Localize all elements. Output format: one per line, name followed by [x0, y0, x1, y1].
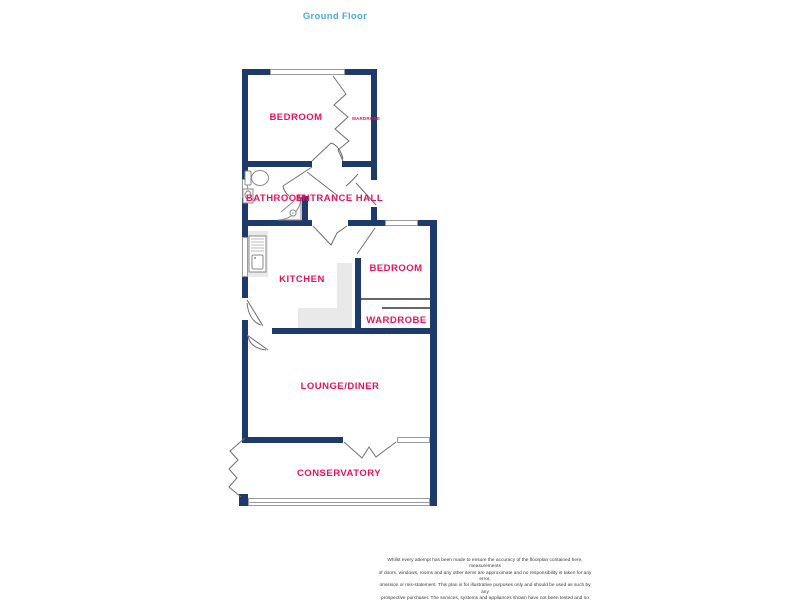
wardrobe2-divider-line [361, 298, 430, 300]
lounge-window [397, 437, 430, 443]
wall-bedroom1-bottom-left [242, 161, 312, 167]
disclaimer: Whilst every attempt has been made to en… [377, 558, 593, 600]
floor-title: Ground Floor [255, 11, 415, 22]
conservatory-window [248, 498, 430, 506]
disclaimer-line: omission or mis-statement. This plan is … [377, 583, 593, 596]
kitchen-side-door [247, 300, 263, 326]
kitchen-label: KITCHEN [262, 274, 342, 285]
conservatory-label: CONSERVATORY [279, 468, 399, 479]
plan-linework [0, 0, 800, 600]
kitchen-window [242, 237, 248, 277]
wardrobe2-label: WARDROBE [346, 315, 447, 326]
toilet-icon [245, 171, 269, 186]
kitchen-counter-horizontal [298, 308, 352, 328]
bedroom2-window [385, 220, 418, 226]
kitchen-counter-left [248, 231, 268, 277]
hall-kitchen-opening-mark [313, 226, 347, 245]
bedroom1-window [270, 69, 345, 75]
wardrobe2-door-line [382, 307, 430, 309]
conservatory-left-opening-mark [229, 438, 245, 497]
entrance-hall-label: ENTRANCE HALL [288, 193, 391, 204]
lounge-diner-label: LOUNGE/DINER [280, 381, 400, 392]
disclaimer-line: prospective purchaser. The services, sys… [377, 596, 593, 600]
floorplan-canvas: Ground Floor [0, 0, 800, 600]
bedroom2-label: BEDROOM [346, 263, 446, 274]
bedroom1-label: BEDROOM [246, 112, 346, 123]
bedroom1-door [312, 143, 343, 161]
wall-conservatory-stub [239, 494, 248, 506]
kitchen-side-door-opening [242, 298, 248, 320]
disclaimer-line: of doors, windows, rooms and any other i… [377, 571, 593, 584]
lounge-conservatory-opening-mark [344, 442, 396, 458]
bedroom2-door [357, 228, 375, 254]
wardrobe1-label: WARDROBE [342, 116, 390, 121]
wall-lounge-bottom [242, 437, 343, 443]
disclaimer-line: Whilst every attempt has been made to en… [377, 558, 593, 571]
kitchen-lounge-door [247, 335, 268, 350]
hall-kitchen-opening [312, 220, 348, 226]
hall-door-swings [283, 167, 338, 196]
